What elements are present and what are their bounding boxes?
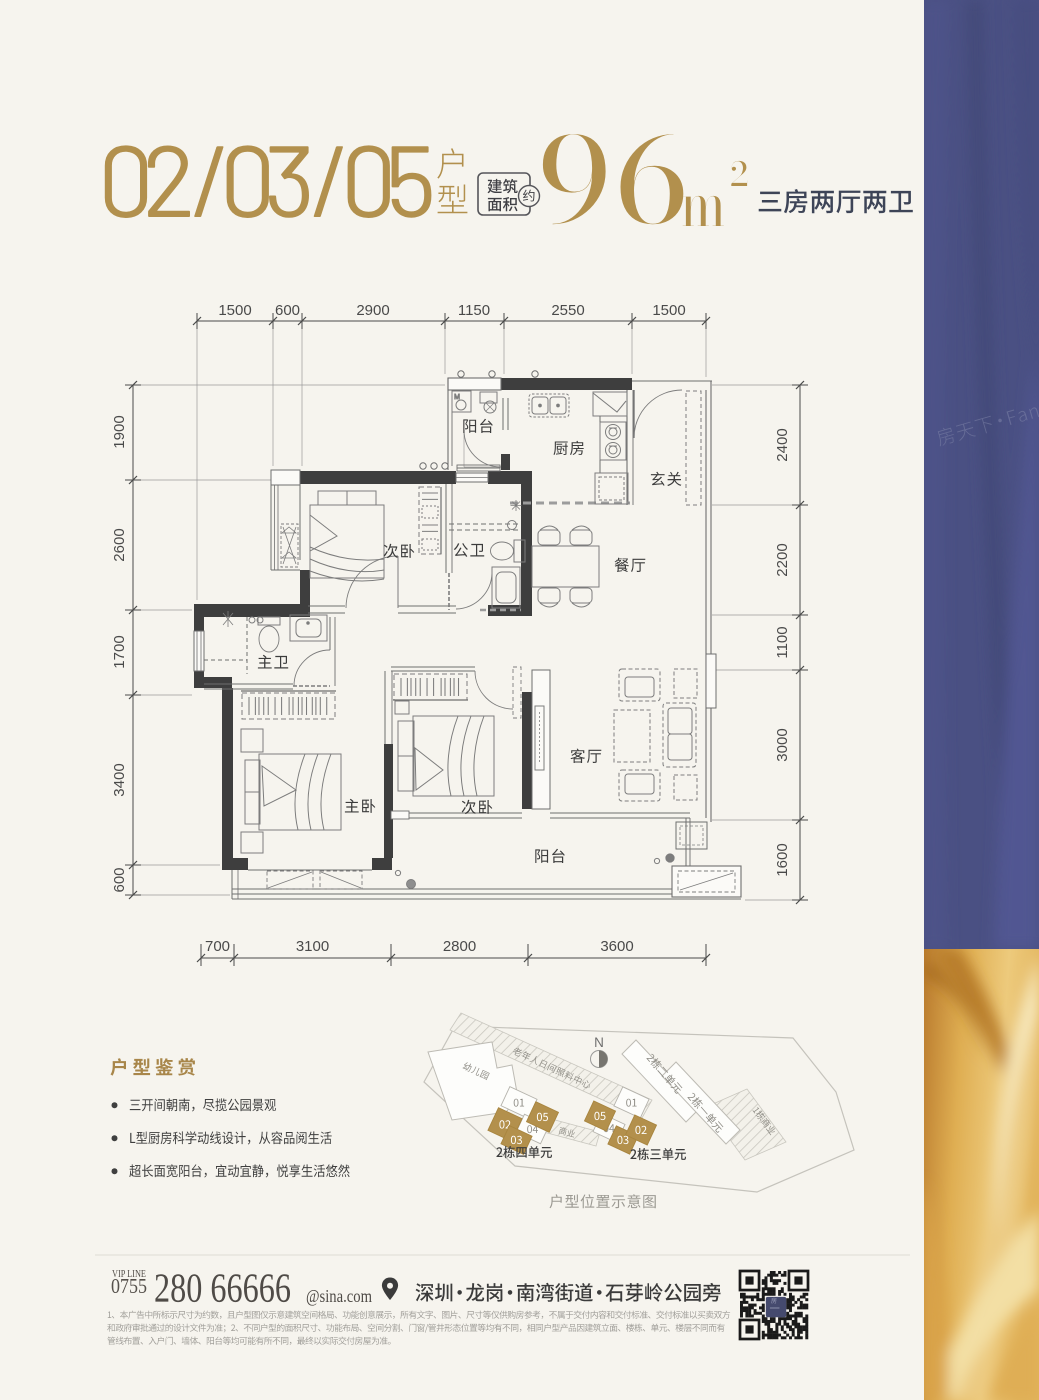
- svg-text:0755: 0755: [111, 1274, 147, 1298]
- svg-text:2800: 2800: [443, 938, 476, 955]
- svg-text:280 66666: 280 66666: [154, 1265, 291, 1311]
- svg-text:700: 700: [205, 938, 230, 955]
- svg-text:1100: 1100: [774, 626, 791, 658]
- svg-text:2200: 2200: [774, 543, 791, 576]
- svg-text:2400: 2400: [774, 428, 791, 461]
- svg-text:1900: 1900: [111, 415, 128, 448]
- svg-text:1500: 1500: [218, 302, 251, 319]
- svg-text:N: N: [594, 1035, 604, 1050]
- svg-text:600: 600: [111, 867, 128, 892]
- svg-text:1700: 1700: [111, 635, 128, 668]
- svg-text:1500: 1500: [652, 302, 685, 319]
- svg-text:3400: 3400: [111, 763, 128, 796]
- svg-text:600: 600: [275, 302, 300, 319]
- svg-text:3100: 3100: [296, 938, 329, 955]
- svg-text:2550: 2550: [551, 302, 584, 319]
- svg-text:2900: 2900: [356, 302, 389, 319]
- svg-text:1600: 1600: [774, 843, 791, 876]
- svg-text:2600: 2600: [111, 528, 128, 561]
- svg-text:3600: 3600: [600, 938, 633, 955]
- svg-text:房: 房: [771, 1297, 777, 1305]
- svg-text:1150: 1150: [458, 302, 490, 319]
- svg-text:3000: 3000: [774, 728, 791, 761]
- svg-text:@sina.com: @sina.com: [306, 1286, 372, 1306]
